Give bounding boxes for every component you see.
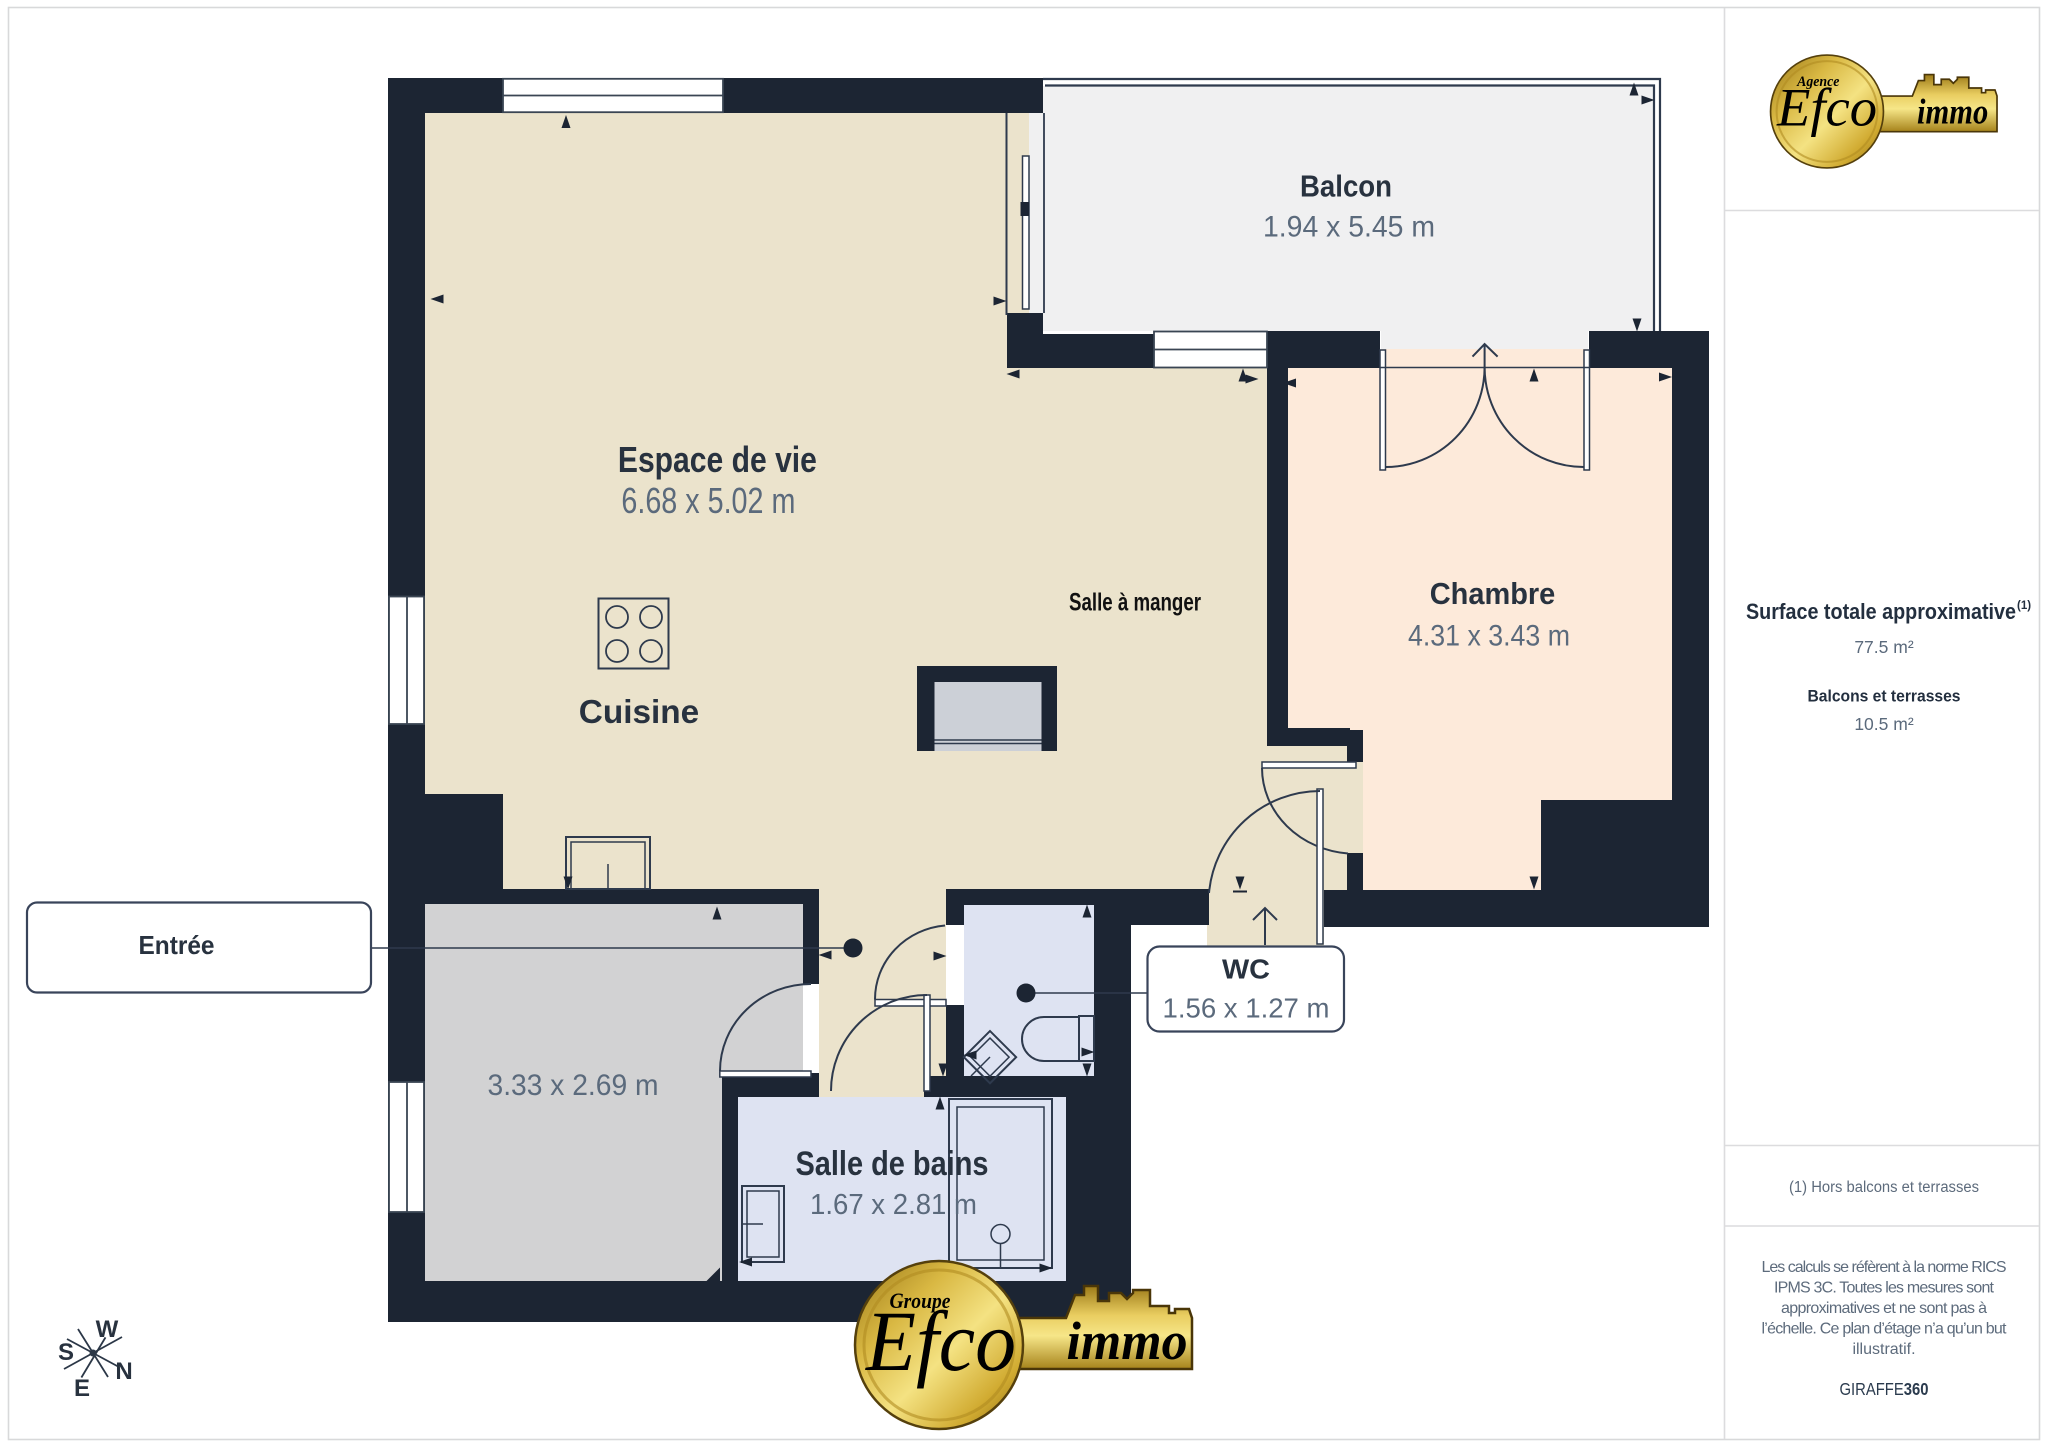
svg-text:IPMS 3C. Toutes les mesures so: IPMS 3C. Toutes les mesures sont xyxy=(1774,1280,1995,1297)
svg-text:GIRAFFE360: GIRAFFE360 xyxy=(1840,1379,1929,1399)
svg-text:Les calculs se réfèrent à la n: Les calculs se réfèrent à la norme RICS xyxy=(1762,1259,2007,1276)
svg-text:Cuisine: Cuisine xyxy=(579,693,700,730)
svg-text:l’échelle. Ce plan d’étage n’a: l’échelle. Ce plan d’étage n’a qu’un but xyxy=(1762,1321,2008,1338)
svg-text:1.67 x 2.81 m: 1.67 x 2.81 m xyxy=(810,1189,977,1221)
svg-text:W: W xyxy=(96,1316,119,1343)
svg-text:WC: WC xyxy=(1222,954,1270,985)
svg-text:(1) Hors balcons et terrasses: (1) Hors balcons et terrasses xyxy=(1789,1179,1979,1196)
svg-text:immo: immo xyxy=(1067,1311,1188,1371)
svg-text:N: N xyxy=(115,1358,132,1385)
svg-text:Chambre: Chambre xyxy=(1430,576,1556,611)
svg-text:3.33 x 2.69 m: 3.33 x 2.69 m xyxy=(488,1069,659,1102)
svg-text:Entrée: Entrée xyxy=(139,930,215,960)
svg-text:S: S xyxy=(58,1339,74,1366)
svg-text:6.68 x 5.02 m: 6.68 x 5.02 m xyxy=(621,480,795,521)
svg-text:Balcons et terrasses: Balcons et terrasses xyxy=(1808,687,1961,706)
svg-text:(1): (1) xyxy=(2017,600,2031,612)
svg-text:Salle à manger: Salle à manger xyxy=(1069,589,1201,617)
svg-text:4.31 x 3.43 m: 4.31 x 3.43 m xyxy=(1408,620,1570,653)
svg-text:immo: immo xyxy=(1917,91,1988,131)
svg-text:Efco: Efco xyxy=(1776,77,1877,137)
svg-text:1.56 x 1.27 m: 1.56 x 1.27 m xyxy=(1163,993,1330,1024)
svg-text:10.5 m²: 10.5 m² xyxy=(1854,714,1913,734)
svg-text:Espace de vie: Espace de vie xyxy=(618,439,817,480)
svg-text:Balcon: Balcon xyxy=(1300,169,1392,204)
svg-text:Efco: Efco xyxy=(864,1293,1016,1389)
svg-text:E: E xyxy=(74,1375,90,1402)
svg-text:illustratif.: illustratif. xyxy=(1852,1341,1915,1358)
svg-text:approximatives et ne sont pas: approximatives et ne sont pas à xyxy=(1781,1300,1987,1317)
svg-text:1.94 x 5.45 m: 1.94 x 5.45 m xyxy=(1263,211,1435,244)
svg-text:Salle de bains: Salle de bains xyxy=(796,1145,989,1183)
svg-text:Surface totale approximative: Surface totale approximative xyxy=(1746,599,2016,624)
svg-text:77.5 m²: 77.5 m² xyxy=(1854,637,1913,657)
